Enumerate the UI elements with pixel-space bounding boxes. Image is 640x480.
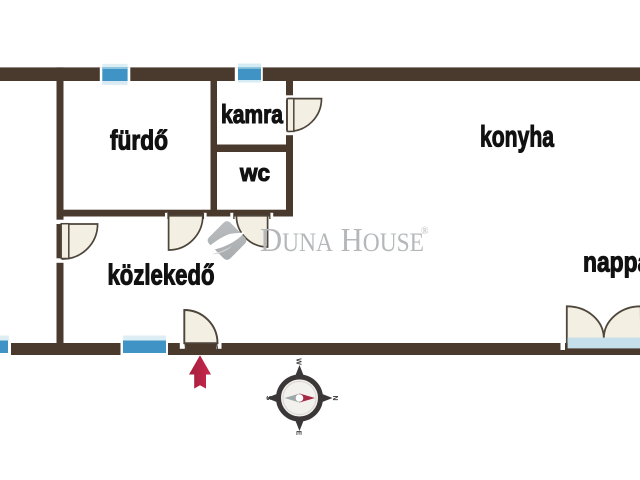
svg-text:kamra: kamra bbox=[221, 99, 283, 129]
svg-text:wc: wc bbox=[239, 160, 270, 187]
svg-text:W: W bbox=[295, 358, 302, 365]
svg-text:DUNA HOUSE: DUNA HOUSE bbox=[260, 222, 424, 259]
svg-text:fürdő: fürdő bbox=[110, 125, 168, 156]
svg-text:közlekedő: közlekedő bbox=[108, 260, 215, 292]
svg-text:konyha: konyha bbox=[480, 120, 554, 153]
svg-text:nappali: nappali bbox=[583, 246, 640, 278]
svg-text:E: E bbox=[295, 431, 302, 436]
svg-text:N: N bbox=[331, 395, 338, 400]
svg-text:®: ® bbox=[421, 226, 429, 237]
svg-text:S: S bbox=[265, 396, 272, 401]
